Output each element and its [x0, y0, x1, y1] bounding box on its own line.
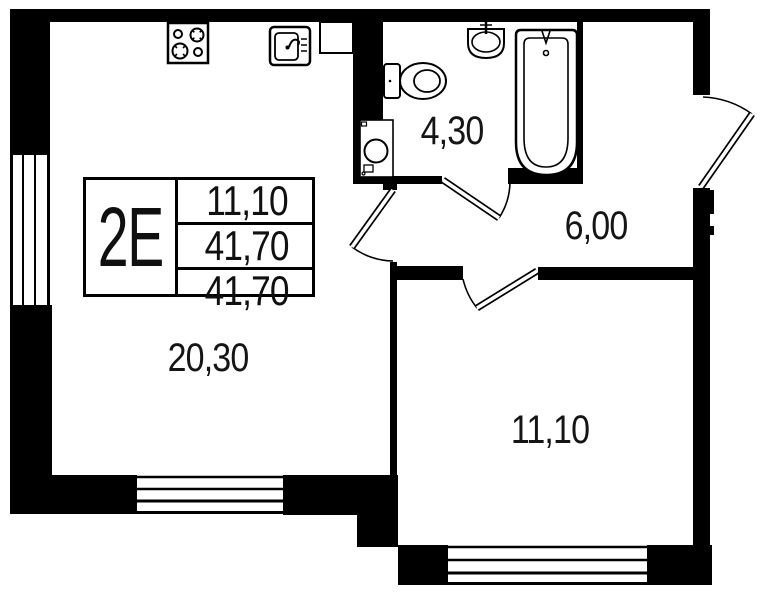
wall-right-lower — [693, 188, 710, 585]
unit-id-cell: 2E — [86, 180, 178, 294]
entrance-door-swing-icon — [701, 97, 752, 187]
wall-top — [10, 9, 710, 22]
bathtub-icon — [516, 30, 577, 175]
room-area-label-bedroom: 11,10 — [495, 412, 606, 448]
wall-bottom-mid — [283, 475, 398, 515]
wall-step — [357, 513, 398, 547]
ventilation-niche — [320, 22, 353, 53]
unit-total-area: 41,70 — [205, 225, 289, 267]
window-icon-living-left — [12, 155, 49, 305]
washing-machine-icon — [360, 120, 393, 177]
floor-plan-drawing — [0, 0, 768, 600]
wall-doorframe-bump — [708, 190, 714, 214]
wall-kitchen-bath — [353, 22, 383, 120]
unit-full-area: 41,70 — [205, 270, 289, 312]
unit-area-row: 41,70 — [178, 222, 312, 267]
room-area-label-bathroom: 4,30 — [397, 113, 508, 149]
wall-bedroom-bottom-left — [398, 545, 448, 585]
unit-area-row: 11,10 — [178, 180, 312, 222]
floor-plan: 20,30 4,30 6,00 11,10 2E 11,10 41,70 41,… — [0, 0, 768, 600]
window-icon-living-bottom — [137, 477, 283, 513]
room-area-label-hallway: 6,00 — [541, 208, 652, 244]
wall-right-upper — [693, 9, 710, 95]
washbasin-icon — [468, 22, 504, 58]
wall-hinge-post — [383, 176, 397, 190]
bedroom-door-swing-icon — [463, 271, 537, 308]
unit-info-table: 2E 11,10 41,70 41,70 — [83, 177, 315, 297]
wall-bedroom-top-left — [396, 266, 463, 280]
wall-bedroom-top-right — [538, 267, 693, 280]
room-area-label-living-kitchen: 20,30 — [153, 340, 264, 376]
stove-icon — [168, 23, 208, 63]
unit-id: 2E — [98, 195, 163, 279]
window-icon-bedroom — [448, 547, 647, 584]
wall-left-lower — [10, 305, 52, 475]
wall-hall-left — [390, 262, 397, 475]
walls — [10, 9, 714, 585]
wall-washer-strip — [353, 120, 360, 184]
kitchen-sink-icon — [270, 27, 310, 65]
wall-doorframe-bump — [708, 226, 714, 235]
toilet-icon — [384, 63, 446, 99]
wall-bottom-left — [10, 475, 137, 514]
unit-area-rows: 11,10 41,70 41,70 — [178, 180, 312, 294]
unit-living-area: 11,10 — [206, 180, 287, 222]
bathroom-door-swing-icon — [443, 180, 510, 218]
wall-left-upper — [10, 9, 50, 155]
living-hall-door-swing-icon — [352, 190, 393, 261]
unit-area-row: 41,70 — [178, 267, 312, 312]
